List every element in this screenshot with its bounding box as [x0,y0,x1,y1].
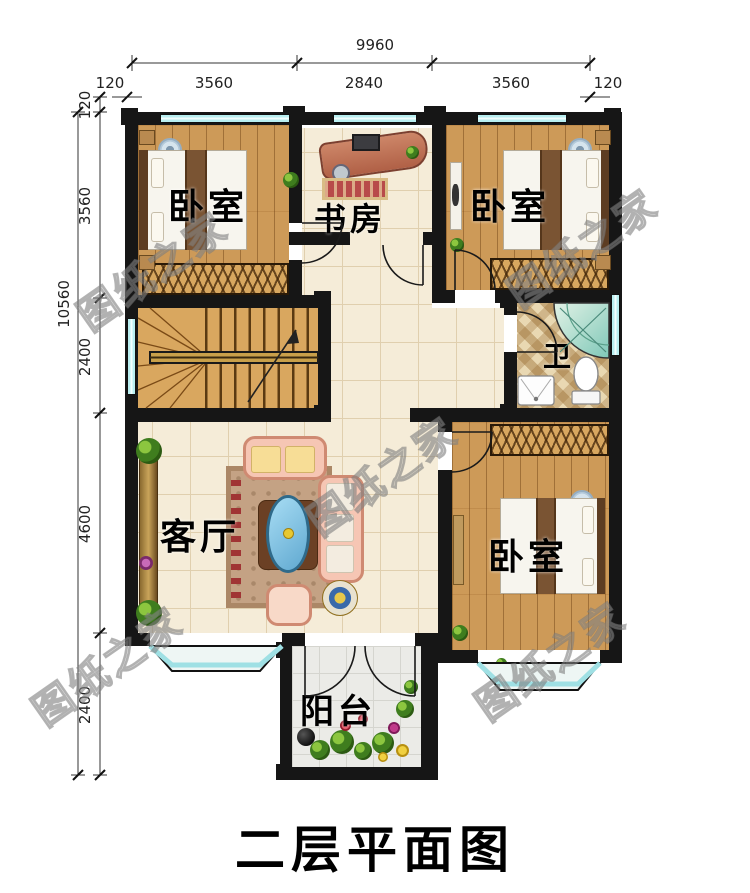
floor-plan: 卧室 书房 卧室 卫 客厅 卧室 阳台 9960 120 3560 2840 3… [0,0,750,893]
sink [518,376,554,405]
bay-window-bedroom-3 [478,663,600,690]
left-dimension-line [71,97,107,775]
shower [554,303,609,358]
stair-direction-arrow [248,330,299,402]
top-dimension-line [112,55,610,97]
bay-window-living [150,646,282,671]
toilet [572,357,600,404]
door-swings [302,223,557,696]
top-dimension-ticks [122,58,595,102]
annotation-layer [0,0,750,893]
